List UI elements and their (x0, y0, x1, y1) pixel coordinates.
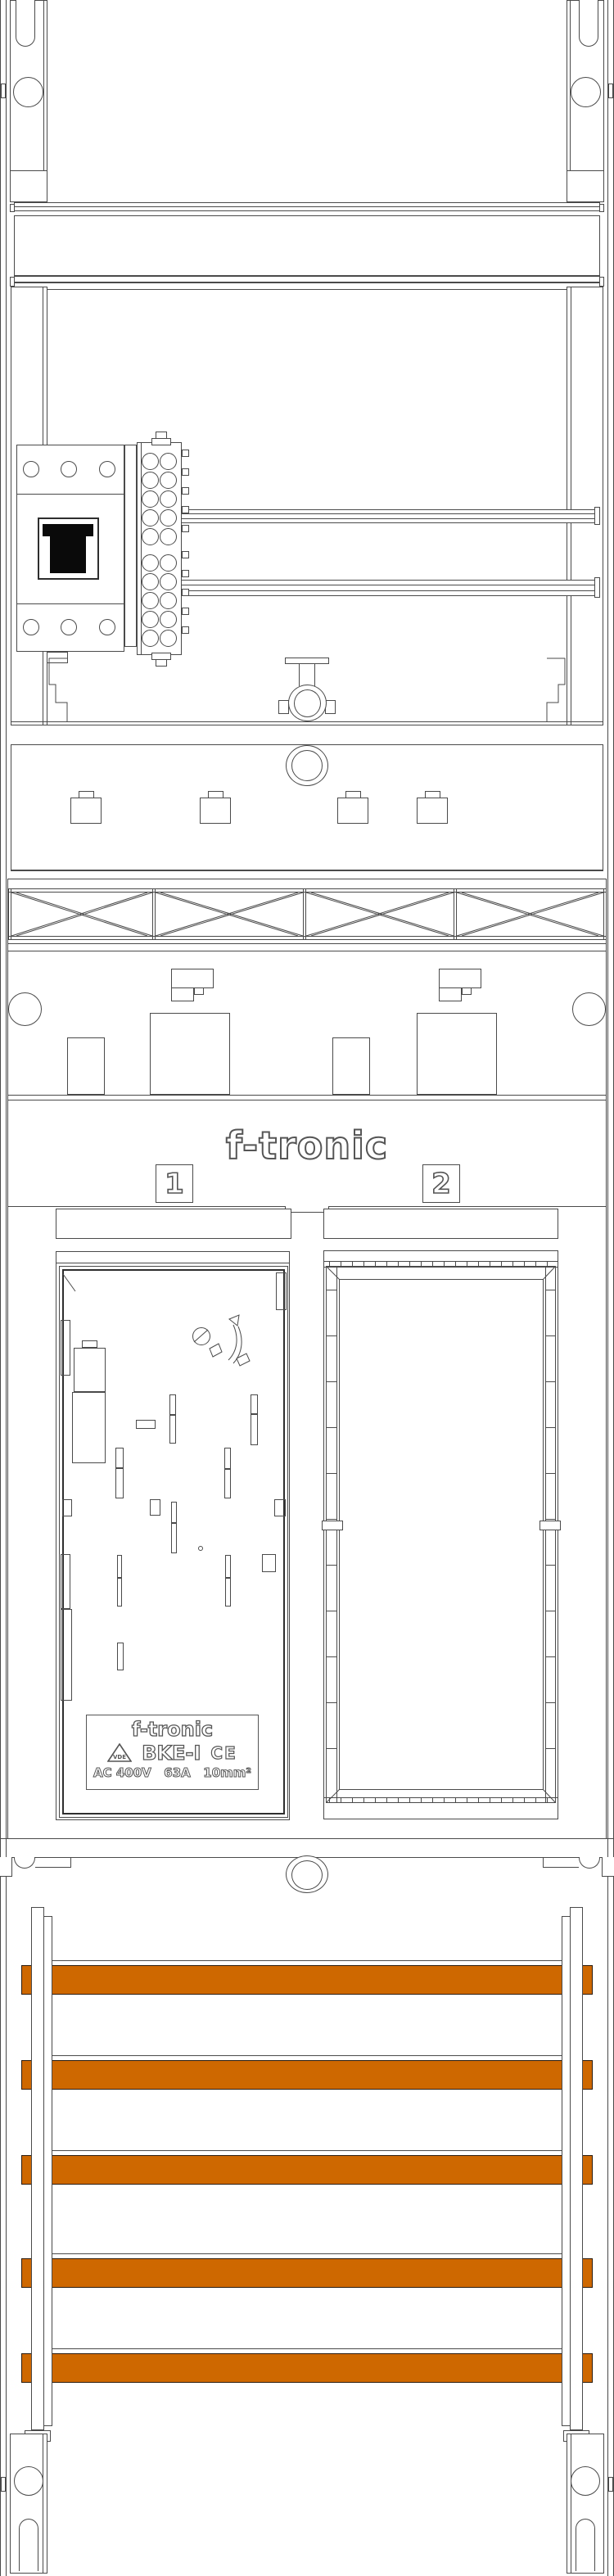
field1-tag: 1 (156, 1168, 193, 1200)
field2-tick (352, 1798, 353, 1803)
field2-tick (501, 1262, 502, 1267)
bottom-right-u-slot (576, 2519, 595, 2571)
screw-hole (99, 619, 115, 635)
terminal-hole (160, 611, 177, 628)
truss-diagonal (457, 893, 598, 936)
din-rail-upper-endcap (594, 507, 600, 525)
field2-tick (398, 1798, 399, 1803)
busbar-guide-line (46, 2348, 568, 2349)
field1-internal-part (251, 1394, 258, 1414)
crossbar-ear (599, 204, 604, 212)
field2-tick (363, 1798, 364, 1803)
field2-tick (421, 1798, 422, 1803)
under-device-bracket-left (49, 658, 67, 721)
busbar (21, 2060, 593, 2090)
busbar (21, 2353, 593, 2383)
busbar-guide-line (46, 2150, 568, 2151)
keyhole-inner (291, 750, 323, 781)
meter-device-divider-bottom (16, 603, 124, 604)
hood-bottom-line-1 (7, 1095, 607, 1096)
truss-diagonal (311, 893, 454, 936)
truss-diagonal (16, 893, 152, 936)
terminal-hole (142, 453, 159, 470)
field1-internal-part (225, 1578, 231, 1607)
crossbar-bottom-rail-2 (14, 282, 600, 290)
knockout-socket (70, 798, 102, 824)
terminal-side-tab (182, 487, 189, 495)
lower-hanger-hole-inner (291, 1860, 323, 1890)
field2-frame-back (339, 1279, 544, 1790)
terminal-side-tab (182, 570, 189, 577)
meter-plug-symbol-stem (50, 536, 86, 573)
vde-triangle-icon: VDE (107, 1743, 132, 1763)
field1-internal-part (117, 1643, 124, 1670)
truss-diagonal (11, 893, 147, 936)
field1-internal-part (150, 1499, 160, 1516)
field2-tick (432, 1262, 433, 1267)
bottom-left-edge-notch (1, 2477, 6, 2492)
top-left-edge-notch (1, 84, 6, 98)
field1-screw (192, 1327, 210, 1345)
top-right-rail-foot (567, 170, 604, 202)
bottom-step-right-vline (543, 1857, 544, 1868)
terminal-hole (142, 509, 159, 526)
field2-rail-tick (327, 1611, 336, 1611)
rating-label-brand: f-tronic (87, 1718, 258, 1741)
terminal-hole (160, 592, 177, 609)
field1-internal-part (251, 1414, 258, 1445)
field2-rail-tick (546, 1611, 556, 1611)
hood-side-hole (572, 992, 606, 1026)
field2-tick (455, 1798, 456, 1803)
field2-tick (341, 1798, 341, 1803)
field2-rail-tick (546, 1381, 556, 1382)
field2-tick (512, 1798, 513, 1803)
terminal-hole (142, 573, 159, 590)
field2-tick (444, 1262, 445, 1267)
field2-tick (547, 1798, 548, 1803)
hood-small-knockout (332, 1037, 370, 1095)
field2-tick (478, 1798, 479, 1803)
field1-internal-part (171, 1502, 177, 1523)
top-left-rail-foot (10, 170, 47, 202)
center-hanger-stem (299, 663, 315, 686)
edge-line-right-inner (607, 0, 608, 2576)
field2-tick (329, 1262, 330, 1267)
hood-small-knockout (67, 1037, 105, 1095)
terminal-side-tab (182, 626, 189, 634)
bottom-step-right-line (544, 1867, 579, 1868)
bottom-notch-left (14, 1857, 35, 1869)
terminal-side-tab (182, 506, 189, 513)
band-line-1 (11, 721, 603, 722)
field2-clip (322, 1521, 343, 1530)
top-right-u-slot (579, 0, 598, 47)
rating-spec-cross-section: 10mm² (203, 1765, 251, 1780)
hood-bracket-foot (439, 987, 462, 1001)
crossbar-top-rail-line (14, 206, 600, 207)
top-right-edge-notch (608, 84, 613, 98)
meter-plug-symbol-icon (43, 524, 93, 536)
field2-rail-tick (546, 1473, 556, 1474)
bottom-notch-right (579, 1857, 600, 1869)
field1-small-hole (198, 1546, 203, 1551)
vde-triangle-text: VDE (113, 1754, 126, 1760)
terminal-side-tab (182, 525, 189, 532)
field2-tick (409, 1262, 410, 1267)
field1-internal-part (224, 1469, 231, 1498)
terminal-block-innerline (141, 442, 142, 655)
crossbar-ear (599, 277, 604, 287)
screw-hole (23, 461, 39, 477)
field2-rail-tick (327, 1519, 336, 1520)
field2-rail-tick (327, 1290, 336, 1290)
terminal-hole (160, 509, 177, 526)
terminal-hole (160, 630, 177, 647)
field2-tick (341, 1262, 341, 1267)
field2-tick (535, 1262, 536, 1267)
terminal-block-top-cap (151, 438, 171, 445)
truss-diagonal (306, 893, 449, 936)
truss-diagonal (462, 893, 603, 936)
top-right-rail-innerline (570, 0, 571, 170)
bottom-right-edge-notch (608, 2477, 613, 2492)
under-device-bracket-right (547, 658, 565, 721)
hood-bottom-line-2 (7, 1100, 607, 1100)
field2-rail-right (545, 1266, 546, 1803)
hood-bracket-tab (194, 987, 204, 995)
field1-internal-part (117, 1578, 122, 1607)
meter-device-foot (47, 652, 68, 663)
truss-diagonal (311, 893, 454, 936)
field2-rail-tick (327, 1335, 336, 1336)
screw-hole (61, 461, 77, 477)
field2-tick (409, 1798, 410, 1803)
field1-internal-part (82, 1340, 97, 1348)
band-line-2 (11, 725, 603, 725)
knockout-socket (200, 798, 231, 824)
din-rail-lower-endcap (594, 577, 600, 598)
field2-rail-tick (327, 1473, 336, 1474)
field2-top-strip (323, 1209, 558, 1239)
field1-internal-part (262, 1554, 276, 1572)
terminal-hole (142, 528, 159, 545)
hood-bracket (171, 969, 214, 988)
busbar-post-right (570, 1907, 583, 2430)
top-left-rail-innerline (43, 0, 44, 170)
field1-internal-part (115, 1468, 124, 1498)
field2-tick (363, 1262, 364, 1267)
field2-tick (375, 1798, 376, 1803)
meter-board-drawing: f-tronic 1 2 f-tronic VDE BKE-I CE AC 40… (0, 0, 614, 2576)
field2-rail-tick (327, 1702, 336, 1703)
field1-internal-part (169, 1415, 176, 1444)
truss-diagonal (160, 893, 303, 936)
field1-internal-part (117, 1555, 122, 1578)
field2-rail-tick (327, 1381, 336, 1382)
field1-internal-part (62, 1499, 72, 1516)
top-left-hole (13, 77, 43, 107)
hood-bracket-foot (171, 987, 194, 1001)
field2-tick (375, 1262, 376, 1267)
field2-rail-tick (327, 1748, 336, 1749)
field1-internal-part (61, 1554, 70, 1609)
field1-internal-part (61, 1609, 72, 1701)
truss-diagonal (16, 893, 152, 936)
truss-diagonal (11, 893, 147, 936)
terminal-side-tab (182, 608, 189, 615)
field1-internal-part (224, 1448, 231, 1469)
field2-tick (329, 1798, 330, 1803)
rating-label-model: BKE-I (142, 1742, 201, 1765)
terminal-block-bottom-cap-small (156, 659, 167, 667)
terminal-side-tab (182, 589, 189, 596)
terminal-hole (142, 611, 159, 628)
top-right-hole (571, 77, 601, 107)
field2-header-line (323, 1261, 558, 1262)
field2-tick (547, 1262, 548, 1267)
field1-internal-part (115, 1448, 124, 1468)
hanger-hole-inner (294, 689, 321, 717)
right-side-rail-innerline (571, 287, 571, 725)
field2-tick (501, 1798, 502, 1803)
hood-tall-knockout (417, 1013, 497, 1095)
busbar-guide-line (46, 1960, 568, 1961)
busbar-guide-line (46, 2253, 568, 2254)
field2-tick (524, 1262, 525, 1267)
field2-rail-tick (327, 1656, 336, 1657)
hood-tall-knockout (150, 1013, 230, 1095)
rating-label: f-tronic VDE BKE-I CE AC 400V 63A 10mm² (86, 1715, 259, 1790)
bottom-left-u-slot (19, 2519, 38, 2571)
truss-diagonal (160, 893, 303, 936)
bottom-right-rail-innerline (571, 2434, 571, 2574)
field2-tick (490, 1262, 490, 1267)
busbar (21, 2258, 593, 2288)
panel-seam-notch (285, 1206, 329, 1213)
top-left-u-slot (16, 0, 35, 47)
field2-tick (512, 1262, 513, 1267)
field1-internal-part (169, 1394, 176, 1415)
panel-line-1063 (11, 870, 603, 871)
field1-internal-part (74, 1348, 106, 1392)
field2-clip (540, 1521, 561, 1530)
terminal-hole (142, 490, 159, 508)
field1-header-line (56, 1263, 290, 1263)
field2-rail-tick (546, 1427, 556, 1428)
truss-diagonal (462, 893, 603, 936)
field1-internal-part (72, 1392, 106, 1463)
field1-internal-part (171, 1523, 177, 1553)
terminal-hole (160, 453, 177, 470)
hood-bracket (439, 969, 481, 988)
terminal-hole (142, 592, 159, 609)
terminal-hole (160, 528, 177, 545)
busbar-post-left (31, 1907, 44, 2430)
field1-internal-part (61, 1320, 70, 1376)
screw-hole (23, 619, 39, 635)
screw-hole (61, 619, 77, 635)
terminal-side-tab (182, 468, 189, 476)
field2-tick (524, 1798, 525, 1803)
terminal-side-tab (182, 450, 189, 457)
truss-diagonal (156, 893, 298, 936)
terminal-hole (160, 490, 177, 508)
busbar (21, 1965, 593, 1995)
terminal-hole (142, 472, 159, 489)
field2-tick (444, 1798, 445, 1803)
bottom-right-hole (571, 2466, 600, 2496)
field1-internal-part (276, 1272, 287, 1310)
bottom-step-left-line (35, 1867, 70, 1868)
crossbar-bottom-rail-1 (14, 276, 600, 282)
field2-rail-tick (546, 1519, 556, 1520)
crossbar-ear (10, 204, 15, 212)
field2-rail-left (336, 1266, 337, 1803)
field1-top-strip (56, 1209, 291, 1239)
field2-rail-tick (546, 1656, 556, 1657)
crossbar-plate (14, 215, 600, 276)
hood-bracket-tab (462, 987, 472, 995)
terminal-hole (142, 554, 159, 572)
field2-rail-tick (546, 1290, 556, 1290)
hood-right-edge (606, 879, 607, 1838)
field2-rail-tick (546, 1748, 556, 1749)
field2-tick (490, 1798, 490, 1803)
field2-rail-tick (546, 1702, 556, 1703)
field2-tick (467, 1798, 467, 1803)
device-spacer-strip (124, 445, 137, 647)
band-line-1152 (7, 943, 607, 944)
meter-device-divider-top (16, 494, 124, 495)
bottom-left-rail-innerline (43, 2434, 43, 2574)
terminal-hole (142, 630, 159, 647)
field2-tick (455, 1262, 456, 1267)
panel-seam-right (329, 1206, 607, 1207)
field2-rail-tick (327, 1427, 336, 1428)
crossbar-ear (10, 277, 15, 287)
truss-diagonal (156, 893, 298, 936)
field2-tick (535, 1798, 536, 1803)
bottom-left-hole (14, 2466, 43, 2496)
bottom-step-left-vline (70, 1857, 71, 1868)
knockout-socket (417, 798, 448, 824)
field2-tick (386, 1262, 387, 1267)
field2-tick (386, 1798, 387, 1803)
busbar-guide-line (46, 2055, 568, 2056)
field2-tick (421, 1262, 422, 1267)
field2-tick (432, 1798, 433, 1803)
field2-tick (398, 1262, 399, 1267)
field2-tick (352, 1262, 353, 1267)
ce-mark: CE (210, 1743, 237, 1763)
rating-spec-voltage: AC 400V (93, 1765, 151, 1780)
field1-internal-part (225, 1555, 231, 1578)
field2-tick (478, 1262, 479, 1267)
field1-internal-part (136, 1420, 156, 1429)
terminal-hole (160, 573, 177, 590)
edge-line-left-outer (0, 0, 1, 2576)
hood-left-edge (7, 879, 8, 1838)
band-line-1161 (7, 951, 607, 951)
bottom-step-left (0, 1857, 12, 1877)
knockout-socket (337, 798, 368, 824)
terminal-side-tab (182, 551, 189, 558)
field2-tick (467, 1262, 467, 1267)
truss-diagonal (457, 893, 598, 936)
truss-diagonal (306, 893, 449, 936)
panel-seam-left (7, 1206, 285, 1207)
field2-rail-tick (327, 1565, 336, 1566)
terminal-hole (160, 554, 177, 572)
right-side-rail (567, 287, 603, 725)
panel-line-1073 (7, 879, 607, 879)
field2-rail-tick (546, 1565, 556, 1566)
terminal-hole (160, 472, 177, 489)
bottom-step-right (602, 1857, 614, 1877)
field2-tag: 2 (422, 1168, 460, 1200)
rating-spec-current: 63A (164, 1765, 190, 1780)
hood-side-hole (8, 992, 42, 1026)
field2-bottom-tickstrip-line (323, 1797, 558, 1798)
field2-rail-tick (546, 1335, 556, 1336)
brand-logo: f-tronic (164, 1123, 450, 1168)
field1-internal-part (274, 1499, 286, 1516)
screw-hole (99, 461, 115, 477)
busbar (21, 2155, 593, 2185)
edge-line-left-inner (6, 0, 7, 2576)
